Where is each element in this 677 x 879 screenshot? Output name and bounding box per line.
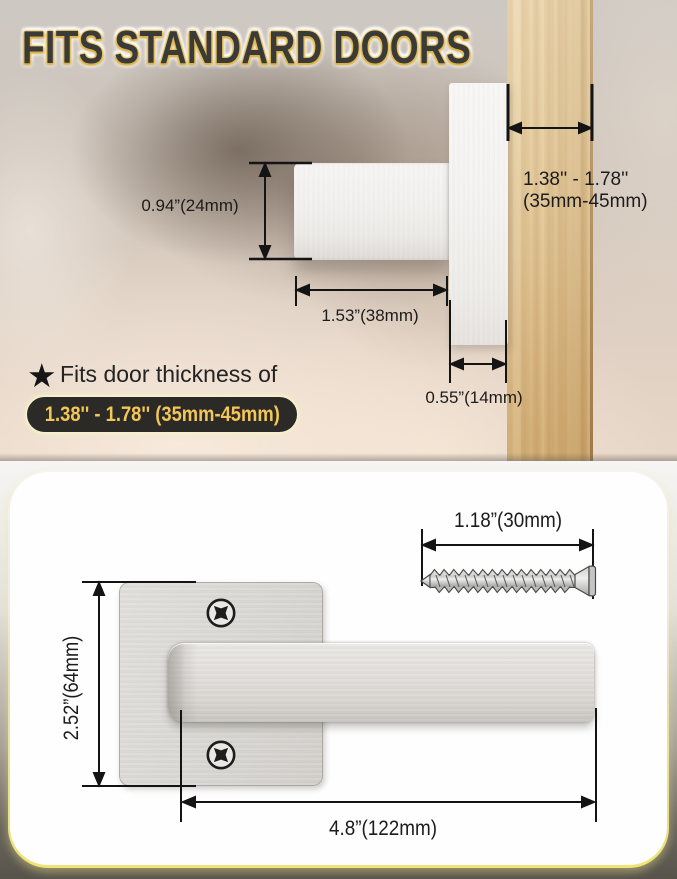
svg-text:2.52”(64mm): 2.52”(64mm) xyxy=(60,636,83,741)
svg-text:0.55”(14mm): 0.55”(14mm) xyxy=(425,388,522,407)
svg-text:1.53”(38mm): 1.53”(38mm) xyxy=(321,306,418,325)
svg-text:1.18”(30mm): 1.18”(30mm) xyxy=(454,509,562,532)
svg-text:4.8”(122mm): 4.8”(122mm) xyxy=(329,817,437,840)
svg-text:0.94”(24mm): 0.94”(24mm) xyxy=(141,196,238,215)
svg-text:(35mm-45mm): (35mm-45mm) xyxy=(523,191,648,212)
svg-text:1.38'' - 1.78'': 1.38'' - 1.78'' xyxy=(523,169,628,190)
